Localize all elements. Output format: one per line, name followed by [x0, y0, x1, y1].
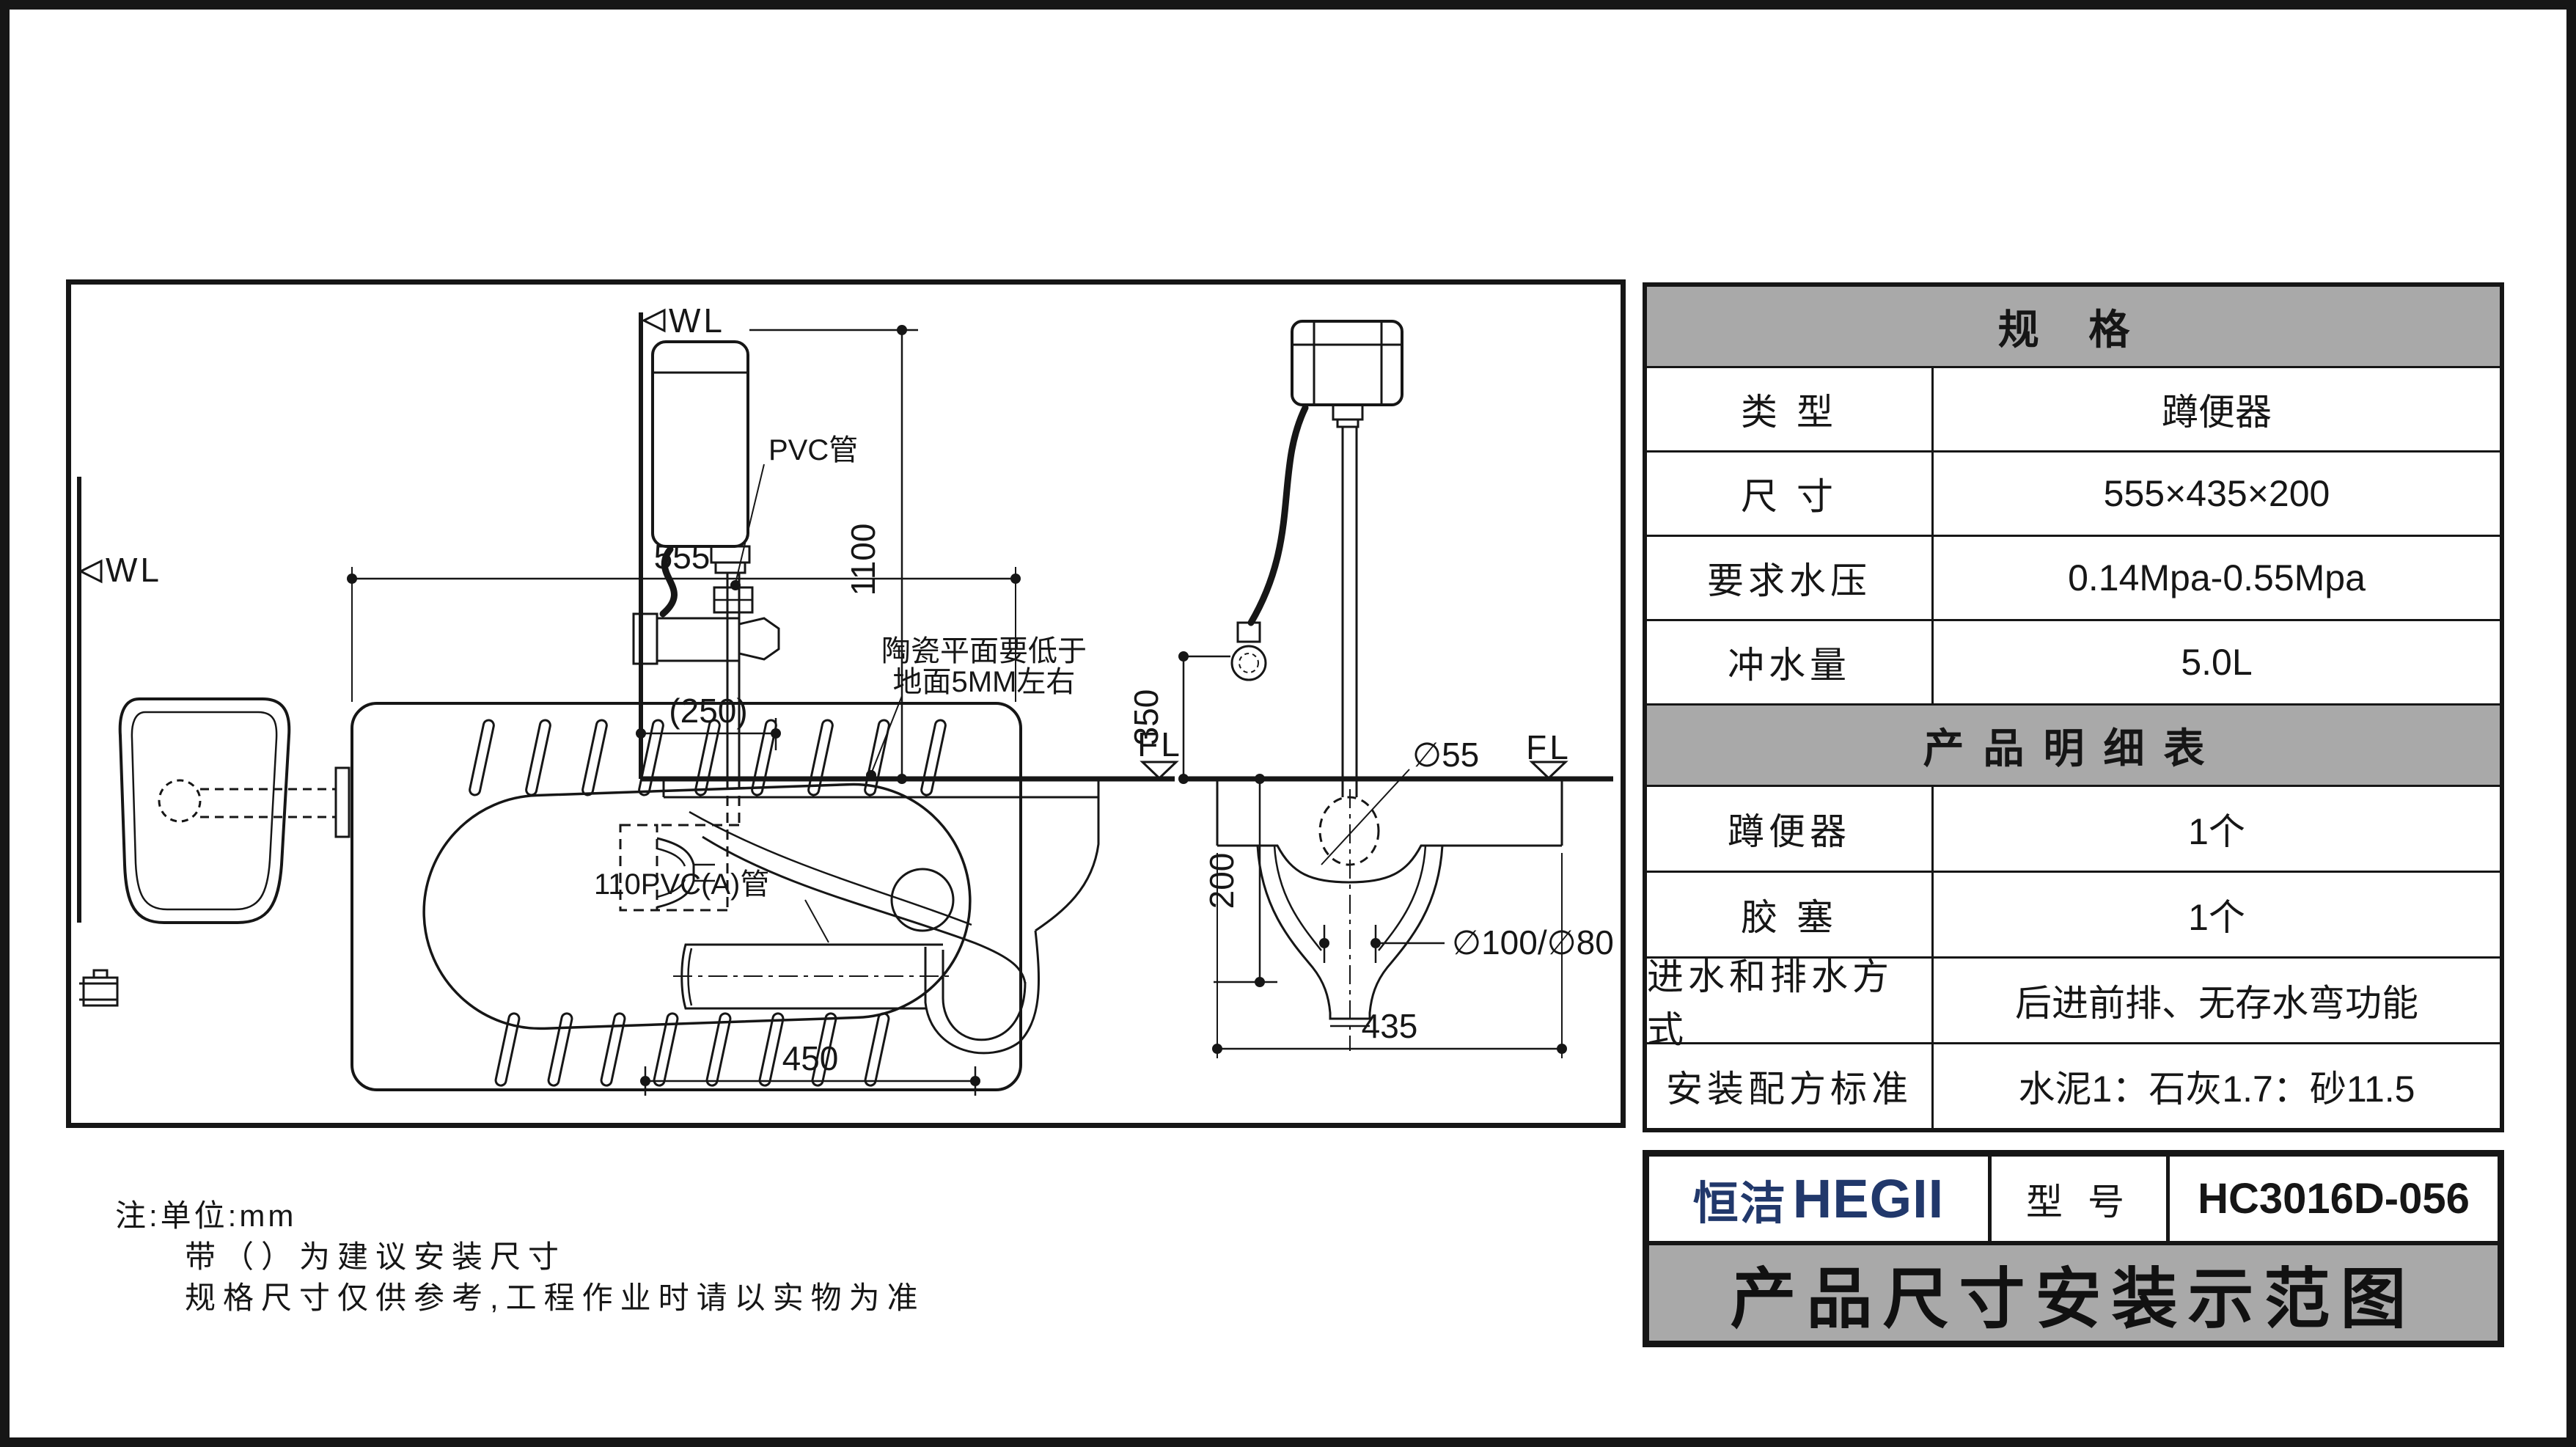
spec-label: 尺 寸 [1647, 453, 1934, 535]
spec-table: 规 格 类 型 蹲便器 尺 寸 555×435×200 要求水压 0.14Mpa… [1643, 282, 2504, 1132]
dim-200: 200 [1203, 774, 1277, 987]
installation-drawing-box: WL [66, 279, 1626, 1128]
table-row: 冲水量 5.0L [1647, 621, 2500, 706]
detail-label: 胶 塞 [1647, 873, 1934, 956]
grip-ribs-top [469, 719, 946, 796]
side-elevation: WL [594, 301, 1282, 1096]
detail-label: 蹲便器 [1647, 787, 1934, 871]
dim-450: 450 [640, 1039, 980, 1096]
dim-200-text: 200 [1203, 853, 1241, 909]
brand-logo-en: HEGII [1793, 1168, 1944, 1230]
wall-level-label: WL [106, 551, 162, 589]
dim-350-text: 350 [1127, 689, 1165, 746]
brand-logo: 恒洁 HEGII [1649, 1157, 1992, 1241]
table-row: 要求水压 0.14Mpa-0.55Mpa [1647, 537, 2500, 621]
floor-level-icon [1142, 762, 1176, 778]
pan-section-side [620, 779, 1098, 1053]
detail-value: 1个 [1934, 873, 2500, 956]
installation-drawing: WL [66, 279, 1626, 1128]
dim-55-text: ∅55 [1412, 736, 1479, 774]
table-row: 胶 塞 1个 [1647, 873, 2500, 959]
datasheet-page: WL [0, 0, 2576, 1447]
ceramic-note-line1: 陶瓷平面要低于 [881, 635, 1087, 667]
pvc-pipe-label: PVC管 [768, 434, 858, 466]
spec-value: 555×435×200 [1934, 453, 2500, 535]
table-row: 尺 寸 555×435×200 [1647, 453, 2500, 537]
dim-100-80-text: ∅100/∅80 [1452, 923, 1614, 961]
spec-value: 蹲便器 [1934, 368, 2500, 450]
supply-connector [1232, 623, 1266, 680]
spec-value: 0.14Mpa-0.55Mpa [1934, 537, 2500, 619]
dim-350: 350 [1127, 651, 1230, 784]
dim-1100-text: 1100 [844, 524, 882, 596]
table-row: 蹲便器 1个 [1647, 787, 2500, 873]
ceramic-note-line2: 地面5MM左右 [893, 666, 1076, 698]
spec-label: 类 型 [1647, 368, 1934, 450]
cistern-front [1292, 321, 1402, 427]
model-label: 型 号 [1992, 1157, 2170, 1241]
bowl-plan [420, 780, 975, 1033]
ceramic-note: 陶瓷平面要低于 地面5MM左右 [866, 635, 1087, 780]
detail-label: 安装配方标准 [1647, 1044, 1934, 1128]
supply-hose-front [1251, 408, 1305, 623]
inlet-hidden-circle [159, 780, 200, 821]
footnotes: 注:单位:mm 带（）为建议安装尺寸 规格尺寸仅供参考,工程作业时请以实物为准 [115, 1195, 925, 1319]
spec-header: 规 格 [1647, 287, 2500, 368]
detail-header: 产品明细表 [1647, 706, 2500, 787]
table-row: 类 型 蹲便器 [1647, 368, 2500, 453]
dim-450-text: 450 [782, 1039, 839, 1077]
detail-label: 进水和排水方式 [1647, 959, 1934, 1042]
inlet-spigot [336, 768, 349, 837]
note-line: 注:单位:mm [115, 1195, 925, 1237]
detail-value: 后进前排、无存水弯功能 [1934, 959, 2500, 1042]
wall-level-label: WL [669, 301, 725, 340]
detail-value: 水泥1：石灰1.7：砂11.5 [1934, 1044, 2500, 1128]
dim-250-text: (250) [669, 692, 747, 730]
angle-valve [634, 587, 779, 664]
pvc110-label: 110PVC(A)管 [594, 868, 769, 901]
floor-level-label: FL [1526, 728, 1571, 766]
detail-value: 1个 [1934, 787, 2500, 871]
table-row: 进水和排水方式 后进前排、无存水弯功能 [1647, 959, 2500, 1044]
sheet-title: 产品尺寸安装示范图 [1649, 1245, 2498, 1341]
spec-label: 要求水压 [1647, 537, 1934, 619]
wall-level-icon [644, 310, 664, 331]
note-line: 带（）为建议安装尺寸 [185, 1237, 925, 1278]
brand-logo-cn: 恒洁 [1693, 1166, 1787, 1232]
model-number: HC3016D-056 [2170, 1157, 2498, 1241]
dim-435-text: 435 [1362, 1007, 1418, 1045]
wall-fitting [79, 970, 117, 1005]
dim-1100: 1100 [749, 325, 918, 784]
wall-level-icon [81, 561, 101, 582]
front-elevation: 350 FL ∅55 [1127, 321, 1614, 1058]
table-row: 安装配方标准 水泥1：石灰1.7：砂11.5 [1647, 1044, 2500, 1128]
dim-100-80: ∅100/∅80 [1319, 923, 1614, 963]
spec-label: 冲水量 [1647, 621, 1934, 703]
note-line: 规格尺寸仅供参考,工程作业时请以实物为准 [185, 1278, 925, 1319]
spec-value: 5.0L [1934, 621, 2500, 703]
pan-rear-profile [120, 699, 349, 923]
title-block: 恒洁 HEGII 型 号 HC3016D-056 产品尺寸安装示范图 [1643, 1150, 2504, 1347]
